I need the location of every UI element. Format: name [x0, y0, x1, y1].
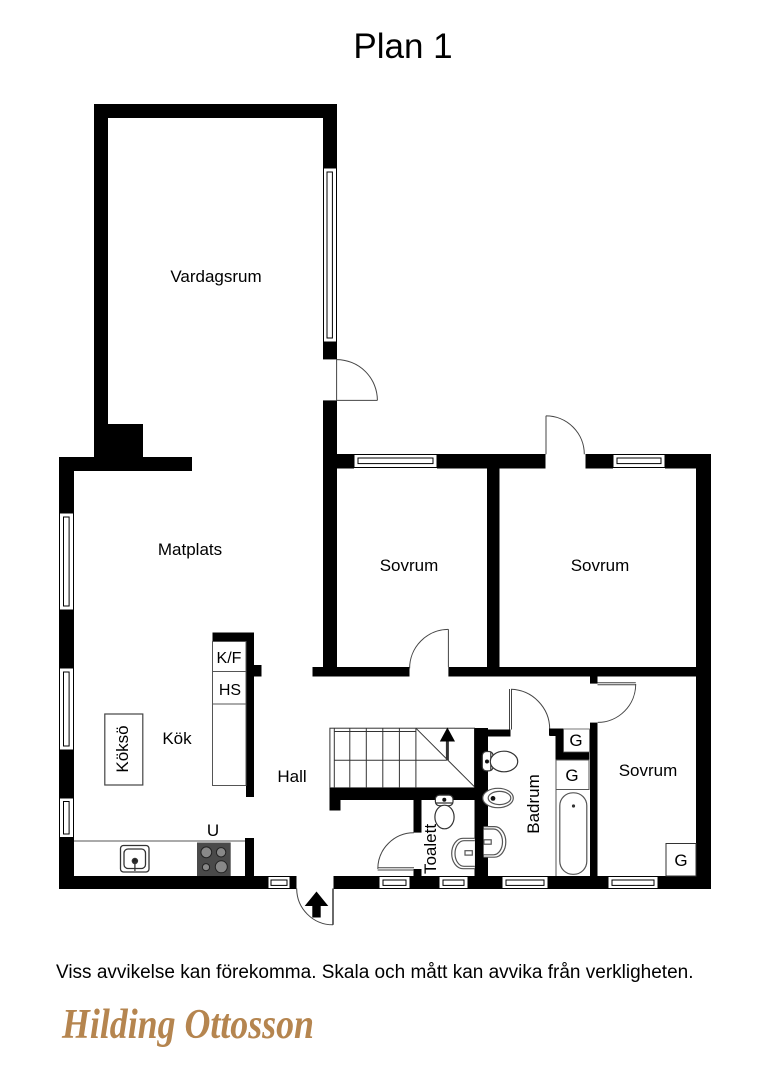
svg-text:G: G — [674, 851, 687, 870]
svg-text:K/F: K/F — [217, 650, 242, 667]
svg-text:Vardagsrum: Vardagsrum — [170, 267, 261, 286]
svg-text:Sovrum: Sovrum — [619, 761, 678, 780]
svg-text:Viss avvikelse kan förekomma.: Viss avvikelse kan förekomma. Skala och … — [56, 962, 694, 983]
svg-text:Toalett: Toalett — [421, 824, 440, 874]
svg-text:Badrum: Badrum — [524, 774, 543, 834]
svg-text:G: G — [569, 731, 582, 750]
svg-text:U: U — [207, 821, 219, 840]
svg-text:HS: HS — [219, 682, 241, 699]
svg-text:Matplats: Matplats — [158, 540, 222, 559]
svg-text:Plan 1: Plan 1 — [353, 27, 452, 66]
svg-text:Sovrum: Sovrum — [380, 556, 439, 575]
svg-text:Kök: Kök — [162, 729, 192, 748]
svg-text:Hilding Ottosson: Hilding Ottosson — [61, 1002, 314, 1048]
svg-text:Hall: Hall — [277, 767, 306, 786]
svg-text:Sovrum: Sovrum — [571, 556, 630, 575]
svg-text:Köksö: Köksö — [113, 725, 132, 772]
svg-text:G: G — [565, 766, 578, 785]
